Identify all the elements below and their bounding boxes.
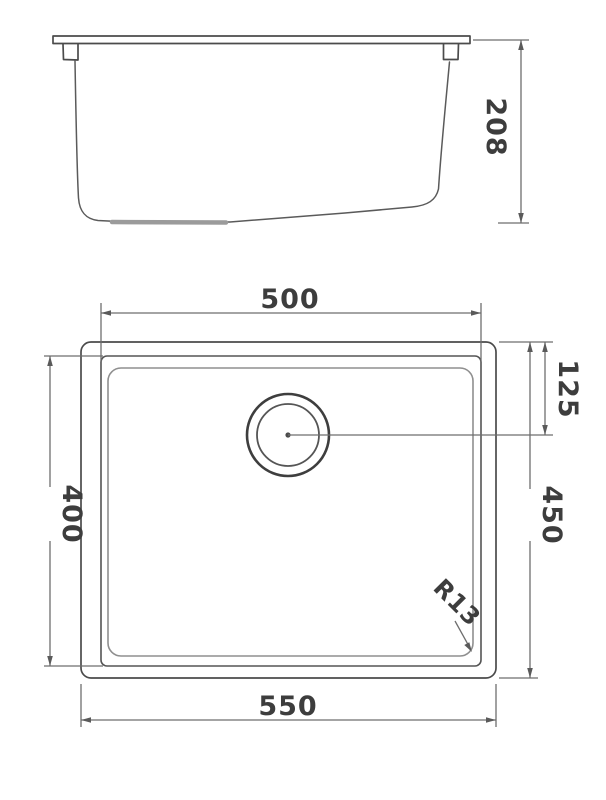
dimension-height-208: 208 <box>473 40 529 223</box>
arrowhead-right <box>471 310 481 316</box>
outer-rim-rect <box>81 342 496 678</box>
dimension-inner-depth-400: 400 <box>44 356 103 666</box>
arrowhead-right <box>486 717 496 723</box>
arrowhead-left <box>101 310 111 316</box>
side-elevation-view: 208 <box>53 36 529 223</box>
dim-label-125: 125 <box>552 359 583 418</box>
sink-rim-profile <box>53 36 470 44</box>
arrowhead-up <box>47 356 53 366</box>
sink-body-outline <box>75 61 450 222</box>
arrowhead-down <box>527 668 533 678</box>
dimension-overall-width-550: 550 <box>81 684 496 727</box>
arrowhead-corner <box>464 642 472 652</box>
dim-label-400: 400 <box>56 484 87 543</box>
arrowhead-up <box>518 40 524 50</box>
dim-label-450: 450 <box>536 485 567 544</box>
arrowhead-up <box>542 342 548 352</box>
top-plan-view: 500 400 450 125 <box>44 284 583 727</box>
drain-boss <box>112 222 226 223</box>
mounting-clip-left <box>63 44 78 60</box>
dimension-inner-width-500: 500 <box>101 284 481 362</box>
arrowhead-down <box>542 425 548 435</box>
bowl-bottom-rect <box>108 368 473 656</box>
arrowhead-up <box>527 342 533 352</box>
label-mask <box>525 489 535 541</box>
arrowhead-down <box>47 656 53 666</box>
sink-technical-drawing: 208 500 <box>0 0 606 800</box>
dim-label-r13: R13 <box>428 573 487 632</box>
drawing-sheet: 208 500 <box>0 0 606 800</box>
dim-label-500: 500 <box>260 284 319 315</box>
corner-radius-callout: R13 <box>428 573 487 652</box>
label-mask <box>45 487 57 541</box>
mounting-clip-right <box>444 44 459 60</box>
arrowhead-left <box>81 717 91 723</box>
dim-label-550: 550 <box>258 691 317 722</box>
arrowhead-down <box>518 213 524 223</box>
dim-label-208: 208 <box>480 97 511 156</box>
bowl-rim-rect <box>101 356 481 666</box>
